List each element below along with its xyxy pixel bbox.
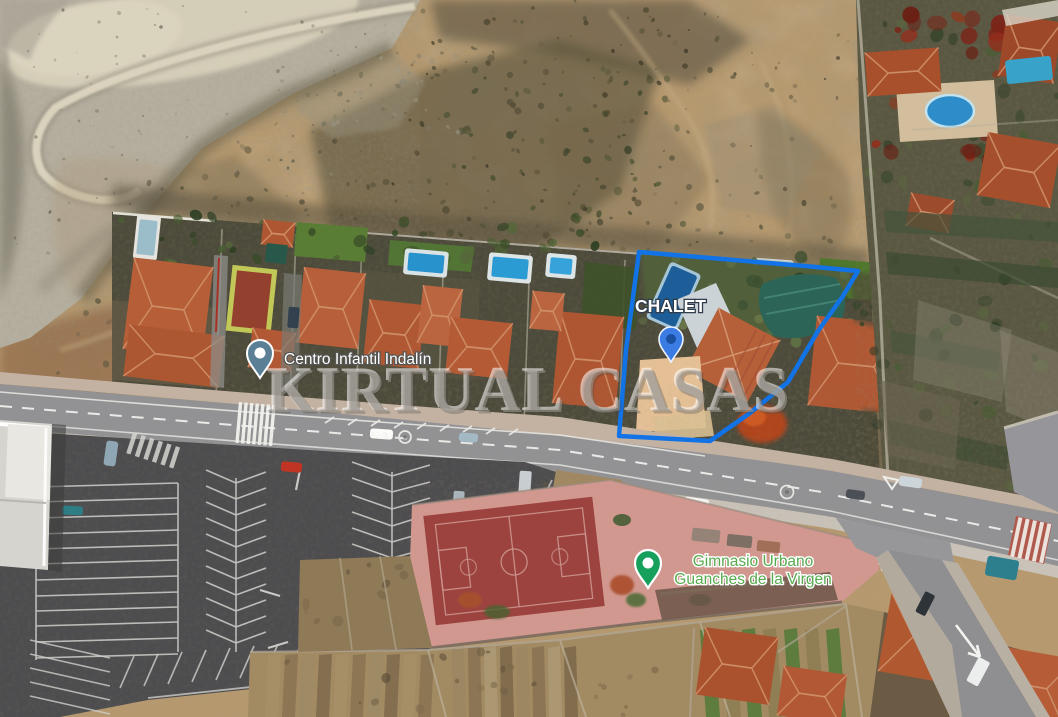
svg-text:Guanches de la Virgen: Guanches de la Virgen bbox=[674, 571, 831, 588]
svg-text:Gimnasio Urbano: Gimnasio Urbano bbox=[693, 553, 814, 570]
svg-text:CHALET: CHALET bbox=[635, 296, 706, 316]
svg-text:Centro Infantil Indalín: Centro Infantil Indalín bbox=[284, 351, 431, 368]
